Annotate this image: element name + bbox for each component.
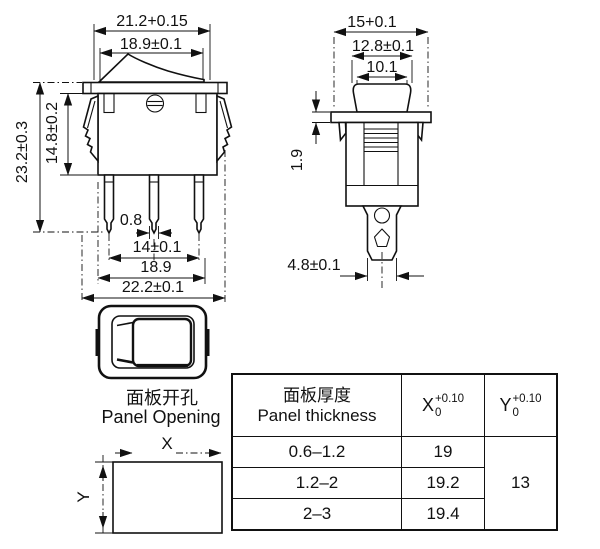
cell-y-value: 13 — [485, 437, 558, 531]
rocker-actuator — [99, 54, 204, 82]
dim-rocker-depth: 12.8±0.1 — [352, 38, 414, 55]
panel-opening-view: 面板开孔 Panel Opening — [96, 306, 221, 427]
header-panel-thickness: 面板厚度 Panel thickness — [232, 374, 402, 437]
table-row: 0.6–1.2 19 13 — [232, 437, 557, 468]
y-tol-upper: +0.10 — [512, 393, 541, 406]
rocker-button — [353, 84, 411, 112]
dim-rocker-width: 18.9±0.1 — [120, 36, 182, 53]
x-tol-lower: 0 — [435, 407, 441, 420]
rocker-edge-line — [117, 323, 133, 326]
panel-opening-label-zh: 面板开孔 — [126, 388, 198, 408]
table-header-row: 面板厚度 Panel thickness X +0.10 0 Y +0.10 0 — [232, 374, 557, 437]
panel-cutout-diagram: X Y — [74, 434, 222, 533]
rocker-switch-datasheet-drawing: 21.2+0.15 18.9±0.1 — [0, 0, 600, 549]
cutout-rect — [113, 462, 222, 533]
side-body — [346, 123, 418, 207]
x-axis-label: X — [161, 434, 172, 453]
header-y: Y +0.10 0 — [485, 374, 558, 437]
dim-flange-depth: 15+0.1 — [347, 14, 396, 31]
panel-opening-label-en: Panel Opening — [101, 407, 220, 427]
front-view: 21.2+0.15 18.9±0.1 — [14, 13, 232, 303]
cell-thickness-3: 2–3 — [232, 499, 402, 531]
panel-opening-tab-left — [96, 329, 101, 356]
dim-total-height: 23.2±0.3 — [14, 121, 31, 183]
side-clip-left — [339, 123, 346, 141]
cell-thickness-1: 0.6–1.2 — [232, 437, 402, 468]
header-x: X +0.10 0 — [402, 374, 485, 437]
y-axis-label: Y — [74, 491, 93, 502]
dim-terminal-width: 4.8±0.1 — [287, 257, 340, 274]
header-x-base: X — [422, 395, 434, 416]
side-flange — [331, 112, 431, 123]
x-tol-upper: +0.10 — [435, 393, 464, 406]
cell-x-2: 19.2 — [402, 468, 485, 499]
dim-flange-thickness: 1.9 — [289, 149, 306, 171]
dim-flange-width: 21.2+0.15 — [116, 13, 188, 30]
header-panel-thickness-en: Panel thickness — [233, 406, 401, 426]
cell-thickness-2: 1.2–2 — [232, 468, 402, 499]
dim-pin-thickness: 0.8 — [120, 212, 142, 229]
cell-x-3: 19.4 — [402, 499, 485, 531]
header-y-base: Y — [499, 395, 511, 416]
snap-clip-left — [84, 96, 99, 161]
panel-opening-tab-right — [205, 329, 210, 356]
side-terminal — [363, 206, 401, 260]
dim-body-height: 14.8±0.2 — [44, 102, 61, 164]
snap-clip-right — [217, 96, 232, 161]
dim-body-width: 18.9 — [140, 259, 171, 276]
dimension-table: 面板厚度 Panel thickness X +0.10 0 Y +0.10 0 — [231, 373, 558, 531]
side-view: 15+0.1 12.8±0.1 10.1 — [287, 14, 431, 288]
dim-overall-width: 22.2±0.1 — [122, 279, 184, 296]
header-panel-thickness-zh: 面板厚度 — [233, 385, 401, 406]
terminal-pin — [105, 175, 114, 233]
y-tol-lower: 0 — [512, 407, 518, 420]
dim-pin-pitch: 14±0.1 — [133, 239, 182, 256]
rocker-face — [133, 319, 191, 366]
rocker-edge-line — [117, 360, 133, 363]
dim-opening-depth: 10.1 — [366, 59, 397, 76]
flange — [83, 83, 227, 94]
terminal-pin — [150, 175, 159, 233]
terminal-pin — [195, 175, 204, 233]
header-y-tolerance: +0.10 0 — [512, 393, 541, 419]
header-x-tolerance: +0.10 0 — [435, 393, 464, 419]
cell-x-1: 19 — [402, 437, 485, 468]
